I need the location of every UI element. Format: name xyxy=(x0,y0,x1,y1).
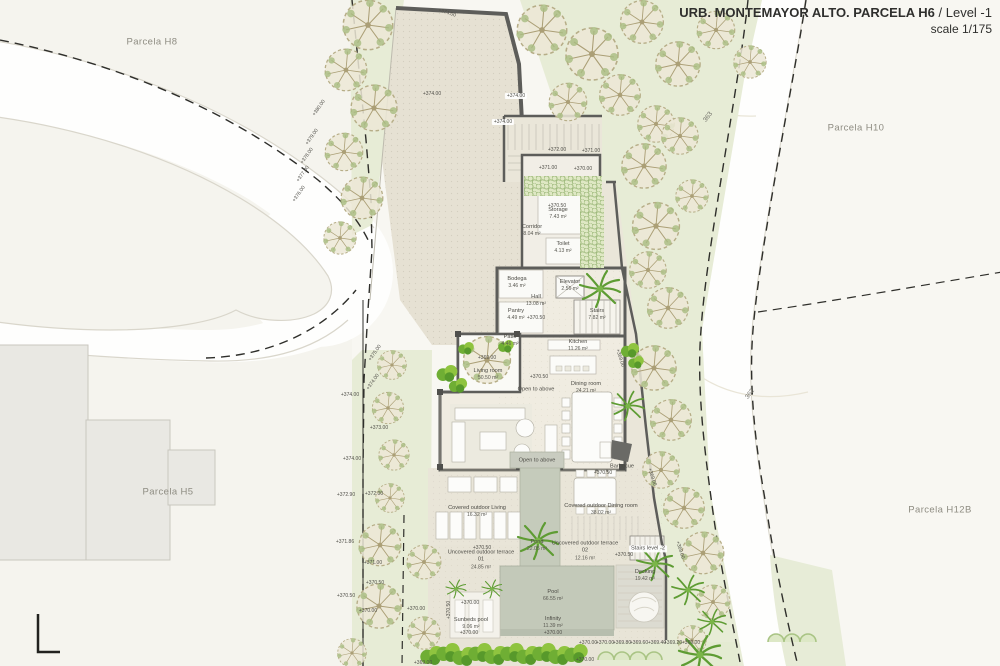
hedge xyxy=(524,176,602,196)
title-block: URB. MONTEMAYOR ALTO. PARCELA H6 / Level… xyxy=(679,5,992,36)
site-plan-canvas xyxy=(0,0,1000,666)
project-title: URB. MONTEMAYOR ALTO. PARCELA H6 xyxy=(679,5,935,20)
hedge xyxy=(580,196,604,268)
site-plan-page: Storage7.43 m²Corridor8.04 m²Toilet4.13 … xyxy=(0,0,1000,666)
level-label: / Level -1 xyxy=(935,5,992,20)
drawing-scale: scale 1/175 xyxy=(679,22,992,36)
drawing-title: URB. MONTEMAYOR ALTO. PARCELA H6 / Level… xyxy=(679,5,992,20)
